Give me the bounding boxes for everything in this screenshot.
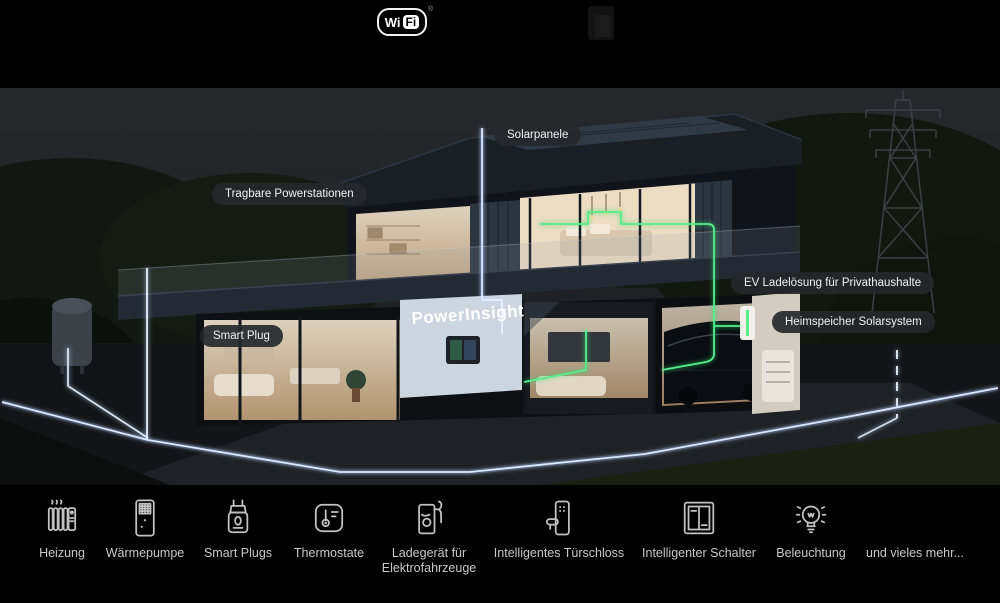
callout-smart-plug: Smart Plug: [200, 325, 283, 347]
dark-partner-logo: [588, 6, 614, 40]
dock-item-label: und vieles mehr...: [866, 546, 964, 561]
smart-switch-icon: [676, 495, 722, 541]
outdoor-tank: [52, 298, 92, 374]
dock-item-mehr[interactable]: und vieles mehr...: [835, 495, 995, 561]
page: Wi Fi ®: [0, 0, 1000, 603]
registered-trademark-symbol: ®: [428, 6, 433, 13]
ev-charger-icon: [406, 495, 452, 541]
device-category-dock: Heizung Wärmepumpe: [0, 485, 1000, 603]
dock-item-label: Ladegerät für Elektrofahrzeuge: [368, 546, 490, 576]
home-battery: [762, 350, 794, 402]
no-icon-spacer: [892, 495, 938, 541]
dock-item-label: Intelligentes Türschloss: [494, 546, 624, 561]
smart-lock-icon: [536, 495, 582, 541]
header-bar: Wi Fi ®: [0, 0, 1000, 88]
thermostat-icon: [306, 495, 352, 541]
wifi-certified-logo: Wi Fi ®: [377, 8, 427, 36]
wifi-logo-fi-text: Fi: [403, 15, 420, 29]
callout-home-battery: Heimspeicher Solarsystem: [772, 311, 935, 333]
wifi-logo-wi-text: Wi: [385, 15, 401, 30]
callout-portable-power-stations: Tragbare Powerstationen: [212, 183, 367, 205]
light-bulb-icon: [788, 495, 834, 541]
callout-solar-panels: Solarpanele: [494, 124, 581, 146]
callout-ev-charging: EV Ladelösung für Privathaushalte: [731, 272, 934, 294]
dock-item-tuerschloss[interactable]: Intelligentes Türschloss: [479, 495, 639, 561]
garage: [656, 292, 800, 414]
